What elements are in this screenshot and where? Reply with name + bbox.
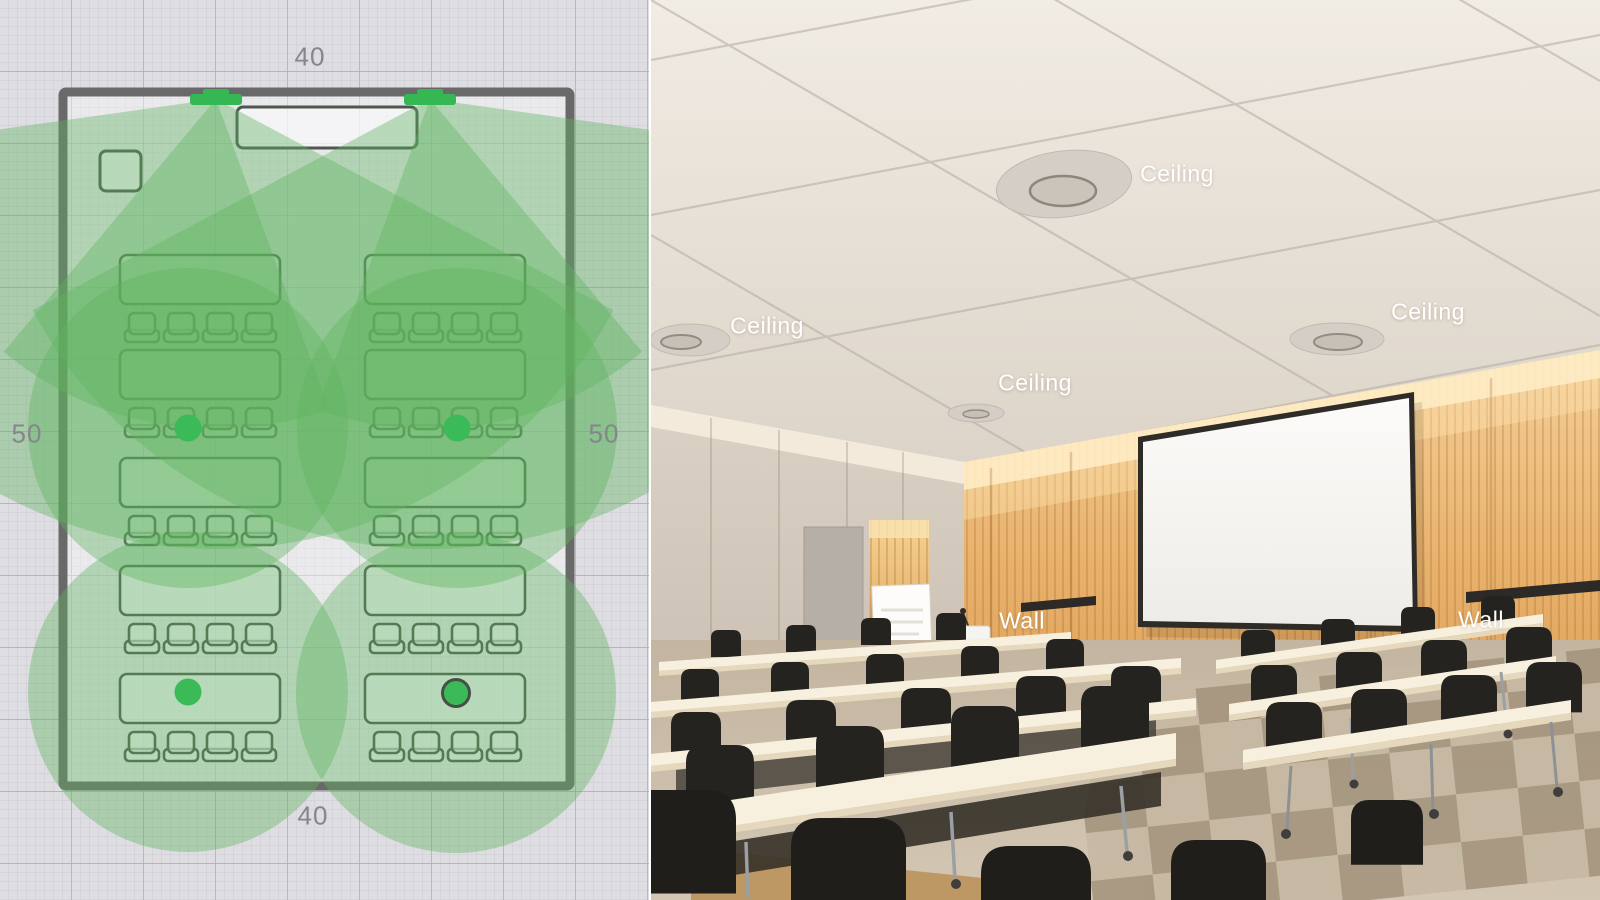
ceiling-position-label: Ceiling [730, 313, 804, 340]
floor-plan-canvas[interactable] [0, 0, 649, 900]
ceiling-speaker-left [651, 324, 730, 356]
wall-position-label: Wall [1458, 607, 1504, 634]
floor-plan-panel[interactable]: 40 50 50 40 [0, 0, 649, 900]
coverage-layer [0, 99, 649, 853]
dimension-label-top: 40 [295, 42, 326, 73]
dimension-label-bottom: 40 [298, 801, 329, 832]
dimension-label-left: 50 [12, 419, 43, 450]
ceiling-position-label: Ceiling [998, 370, 1072, 397]
wall-position-label: Wall [999, 608, 1045, 635]
coverage-comparison-view: 40 50 50 40 [0, 0, 1600, 900]
ceiling-speaker-right [1290, 323, 1384, 355]
ceiling-mic-dot[interactable] [444, 415, 471, 442]
ceiling-mic-dot[interactable] [175, 415, 202, 442]
podium-microphone-icon [960, 608, 966, 614]
ceiling-speaker-small [948, 404, 1004, 422]
ceiling-mic-dot[interactable] [175, 679, 202, 706]
ceiling-position-label: Ceiling [1391, 299, 1465, 326]
room-photo-illustration [651, 0, 1600, 900]
ceiling-mic-dot-selected[interactable] [443, 680, 470, 707]
ceiling-position-label: Ceiling [1140, 161, 1214, 188]
dimension-label-right: 50 [589, 419, 620, 450]
room-photo-panel: Ceiling Ceiling Ceiling Ceiling Wall Wal… [651, 0, 1600, 900]
